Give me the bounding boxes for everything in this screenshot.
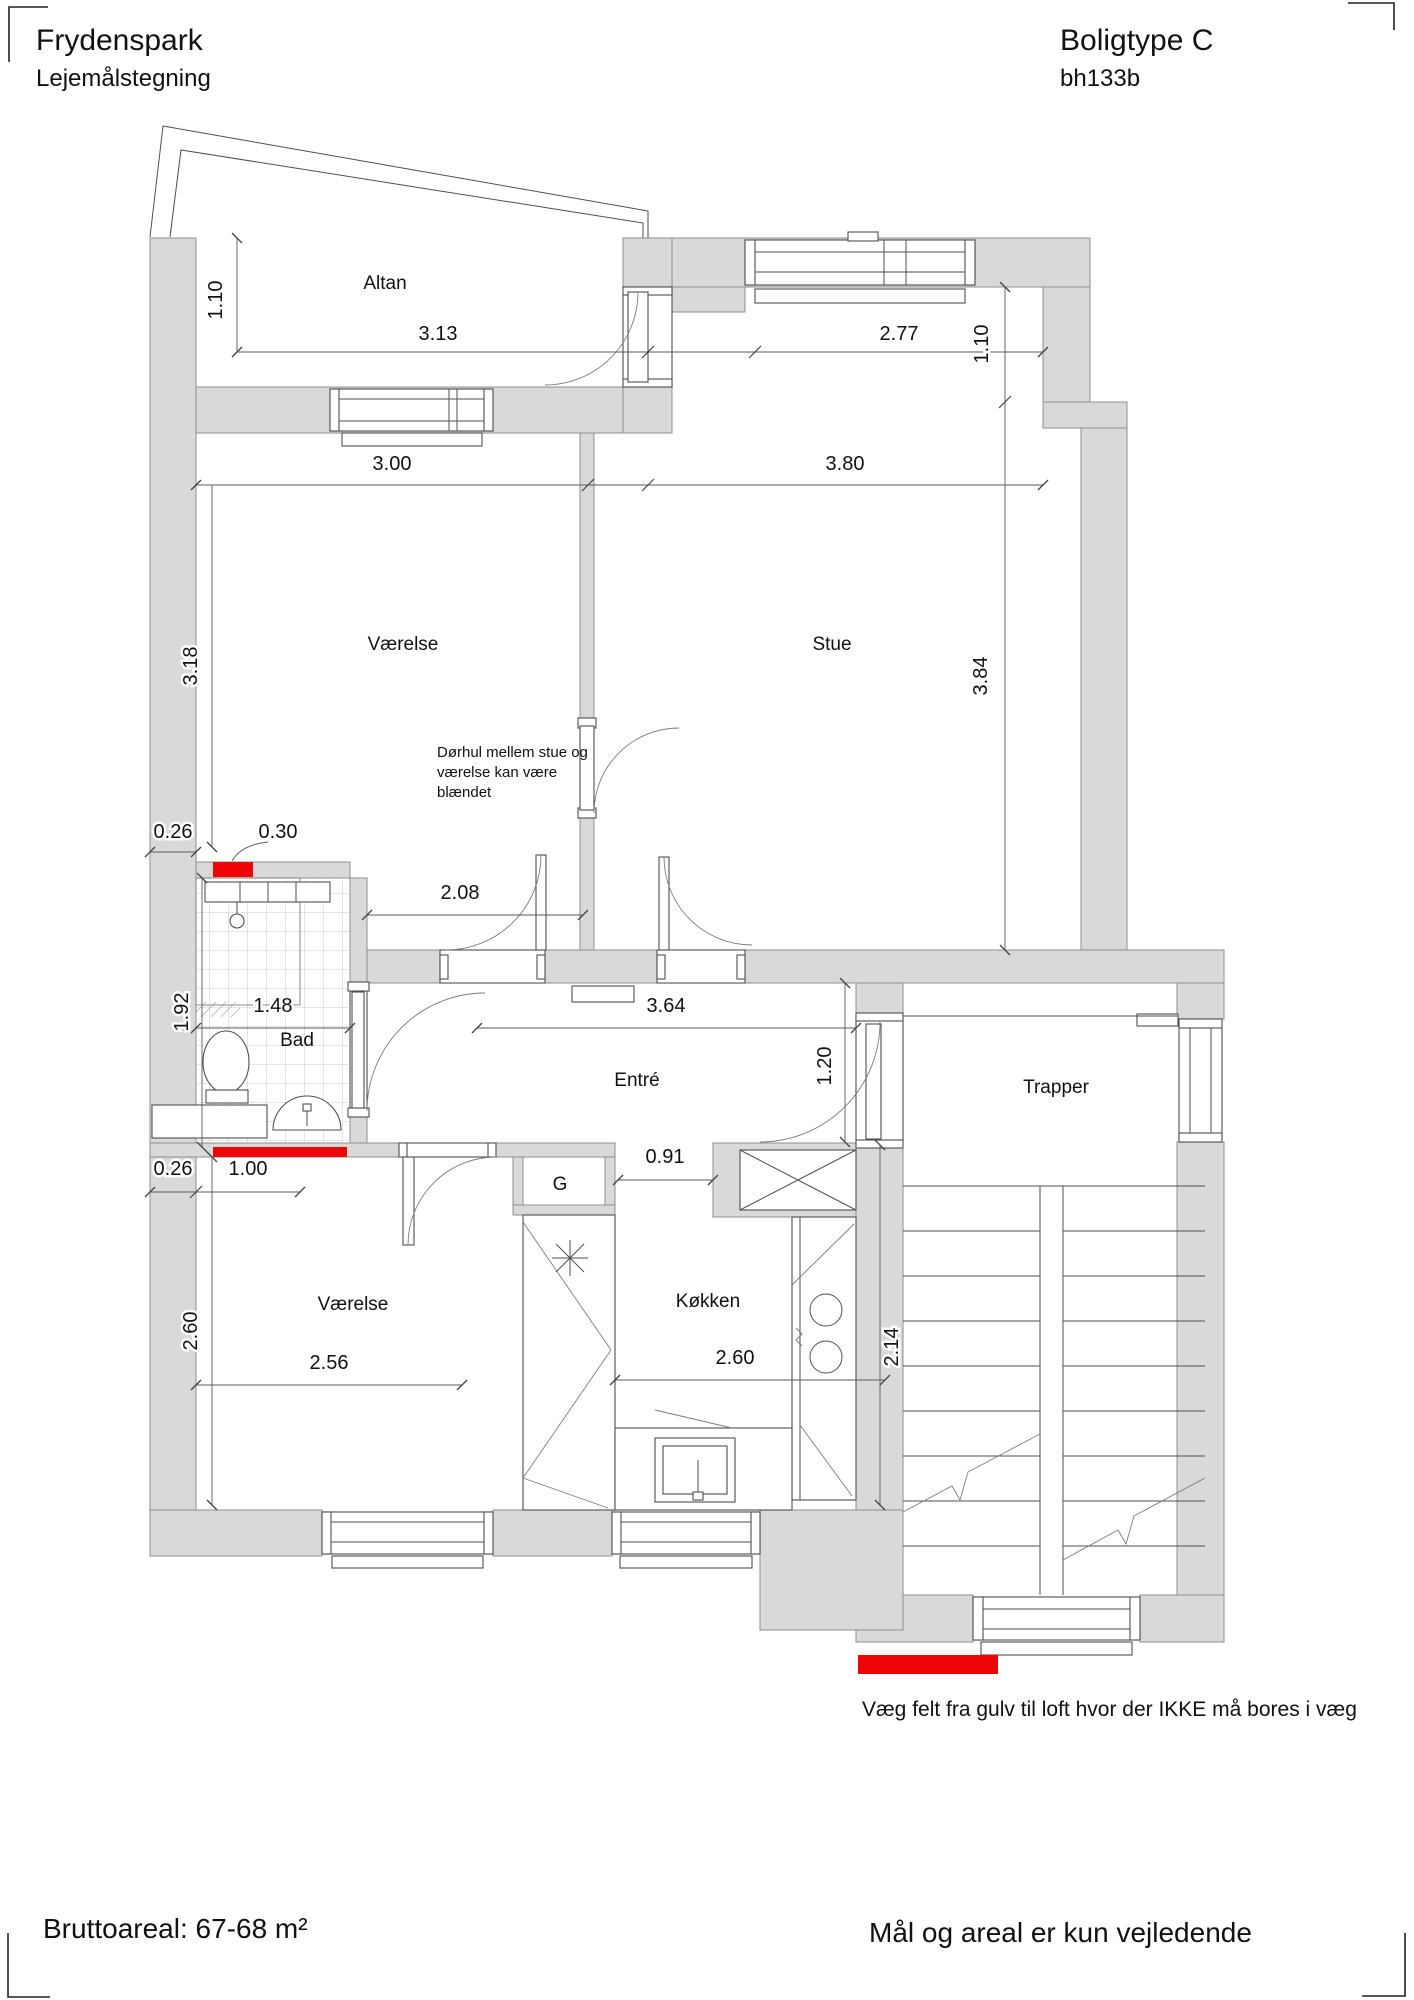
room-label-vaerelse-top: Værelse <box>368 634 439 655</box>
dim-bad-bottom-left: 0.26 <box>154 1158 193 1180</box>
no-drill-segment-bad-bottom <box>213 1147 347 1157</box>
stair-treads <box>903 1231 1205 1546</box>
room-label-stue: Stue <box>812 634 851 655</box>
window-trapper-right <box>1179 1019 1222 1142</box>
door-stue-vaerelse <box>578 718 679 818</box>
window-trapper-bottom <box>973 1597 1140 1655</box>
dim-bad-bottom-opening: 1.00 <box>229 1158 268 1180</box>
door-vaerelse-bottom <box>399 1143 496 1245</box>
dim-vaerelse-top-height: 3.18 <box>180 647 202 686</box>
dim-entry-door: 1.20 <box>814 1047 836 1086</box>
door-entre-vaerelse-top <box>440 855 546 983</box>
dim-bad-width: 1.48 <box>254 995 293 1017</box>
dim-entre-width: 3.64 <box>647 995 686 1017</box>
dim-bad-top-opening: 0.30 <box>259 821 298 843</box>
dim-koekken-height: 2.14 <box>881 1328 903 1367</box>
stair-break-line <box>903 1434 1040 1512</box>
door-entre-stue <box>657 857 752 983</box>
drawing-id: bh133b <box>1060 65 1140 92</box>
window-vaerelse-bottom <box>322 1512 493 1568</box>
dim-vaerelse-top-width: 3.00 <box>373 453 412 475</box>
dim-bad-height: 1.92 <box>171 993 193 1032</box>
window-vaerelse-top <box>330 389 493 446</box>
legend-red-swatch <box>858 1655 998 1674</box>
room-label-altan: Altan <box>363 273 406 294</box>
vent-icon <box>848 232 878 241</box>
dim-vaerelse-doorway: 2.08 <box>441 882 480 904</box>
room-label-entre: Entré <box>614 1070 659 1091</box>
legend: Væg felt fra gulv til loft hvor der IKKE… <box>858 1655 1357 1721</box>
counter-bottom <box>615 1410 792 1510</box>
window-stue <box>745 232 975 303</box>
project-title: Frydenspark <box>36 24 204 57</box>
floor-plan-page: Frydenspark Lejemålstegning Boligtype C … <box>0 0 1414 2000</box>
no-drill-segment-bad-top <box>213 862 253 877</box>
toilet-icon <box>203 1031 249 1103</box>
dim-stue-top-width: 2.77 <box>880 323 919 345</box>
dim-vaerelse-bottom-width: 2.56 <box>310 1352 349 1374</box>
footer: Bruttoareal: 67-68 m² Mål og areal er ku… <box>43 1913 1252 1948</box>
radiator-icon <box>572 986 634 1002</box>
door-note-line3: blændet <box>437 784 492 801</box>
dim-right-top-offset: 1.10 <box>971 325 993 364</box>
dim-stue-height: 3.84 <box>970 657 992 696</box>
door-altan <box>545 287 672 387</box>
room-label-bad: Bad <box>280 1030 314 1051</box>
room-label-vaerelse-bottom: Værelse <box>318 1294 389 1315</box>
kitchen-fittings <box>523 1215 856 1510</box>
drawing-type: Lejemålstegning <box>36 65 211 92</box>
tall-cabinets <box>523 1215 615 1510</box>
door-note: Dørhul mellem stue og værelse kan være b… <box>437 744 588 801</box>
gross-area: Bruttoareal: 67-68 m² <box>43 1913 308 1944</box>
legend-text: Væg felt fra gulv til loft hvor der IKKE… <box>862 1698 1357 1721</box>
disclaimer: Mål og areal er kun vejledende <box>869 1917 1252 1948</box>
vanity <box>152 1105 267 1138</box>
room-label-garderobe: G <box>553 1174 568 1195</box>
shaft <box>740 1150 856 1210</box>
balcony-rail <box>150 126 648 238</box>
title-block: Frydenspark Lejemålstegning Boligtype C … <box>36 24 1213 92</box>
dim-altan-width: 3.13 <box>419 323 458 345</box>
floor-plan-drawing: Frydenspark Lejemålstegning Boligtype C … <box>0 0 1414 2000</box>
dim-vaerelse-bottom-height: 2.60 <box>180 1312 202 1351</box>
dim-koekken-width: 2.60 <box>716 1347 755 1369</box>
stairs <box>903 1016 1205 1595</box>
room-label-trapper: Trapper <box>1023 1077 1089 1098</box>
dim-altan-depth: 1.10 <box>205 281 227 320</box>
dim-stue-width: 3.80 <box>826 453 865 475</box>
room-label-koekken: Køkken <box>676 1291 740 1312</box>
door-note-line1: Dørhul mellem stue og <box>437 744 588 761</box>
fridge-icon <box>552 1240 588 1276</box>
door-bad <box>348 982 485 1117</box>
door-note-line2: værelse kan være <box>437 764 557 781</box>
housing-type: Boligtype C <box>1060 24 1213 57</box>
dim-bad-top-left: 0.26 <box>154 821 193 843</box>
counter-right <box>792 1217 856 1500</box>
kitchen-sink-icon <box>655 1438 735 1502</box>
window-koekken <box>612 1512 760 1568</box>
dim-kitchen-opening: 0.91 <box>646 1146 685 1168</box>
